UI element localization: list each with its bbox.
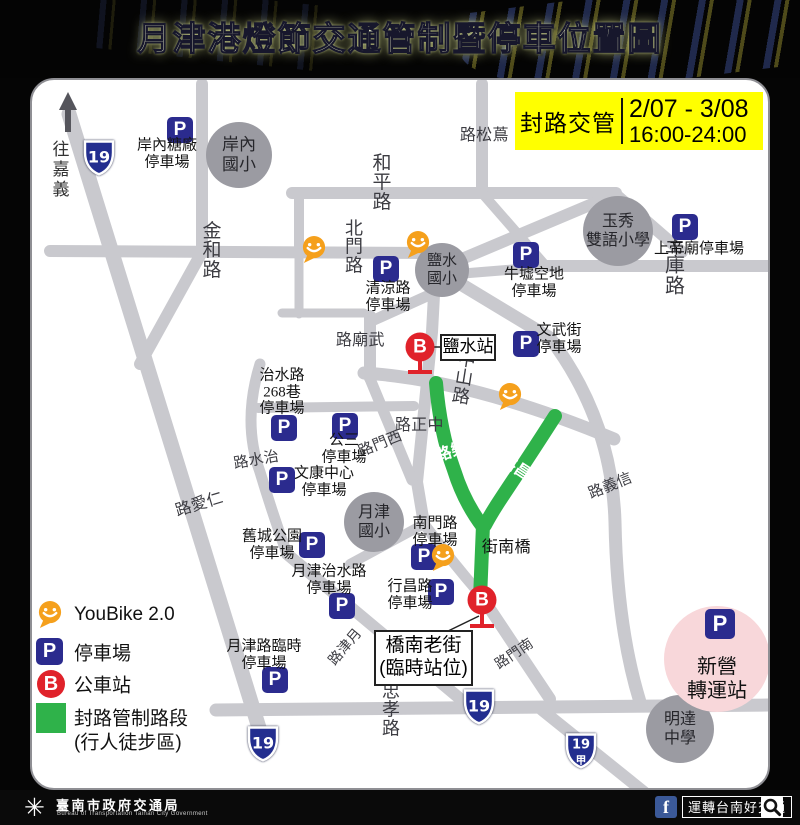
- parking-label: 文康中心 停車場: [294, 466, 354, 499]
- legend-bus-label: 公車站: [74, 671, 131, 698]
- page-title: 月津港燈節交通管制暨停車位置圖: [0, 12, 800, 60]
- compass-destination: 往嘉義: [47, 140, 72, 200]
- route-shield: 19: [246, 725, 280, 768]
- parking-icon: P: [705, 609, 735, 639]
- school-circle: 岸內 國小: [206, 122, 272, 188]
- parking-label: 文武街 停車場: [536, 323, 581, 356]
- page: 月津港燈節交通管制暨停車位置圖: [0, 0, 800, 825]
- parking-icon: P: [269, 467, 295, 493]
- agency-name-en: Bureau of Transportation Tainan City Gov…: [57, 811, 208, 817]
- route-shield: 19: [462, 688, 496, 731]
- parking-label: 公三 停車場: [321, 433, 366, 466]
- road-label: 蔦松路: [457, 126, 506, 144]
- parking-icon: P: [36, 638, 63, 665]
- road-label: 忠孝路: [382, 682, 400, 737]
- school-circle: 月津 國小: [344, 492, 404, 552]
- parking-label: 治水路 268巷 停車場: [259, 367, 304, 417]
- parking-label: 行昌路 停車場: [387, 579, 432, 612]
- search-icon[interactable]: [761, 796, 783, 818]
- route-shield: 19: [82, 139, 116, 182]
- youbike-icon: [301, 235, 328, 265]
- parking-icon: P: [329, 593, 355, 619]
- bus-stop-name: 橋南老街 (臨時站位): [374, 630, 473, 686]
- facebook-icon[interactable]: f: [655, 796, 677, 818]
- road-label: 金和路: [202, 222, 221, 280]
- parking-label: 月津路臨時 停車場: [226, 639, 301, 672]
- notice-dates: 2/07 - 3/08: [629, 96, 763, 123]
- parking-label: 清涼路 停車場: [365, 281, 410, 314]
- legend-closed-label-line1: 封路管制路段: [74, 704, 188, 731]
- svg-text:19: 19: [572, 738, 590, 753]
- legend-closed-label-line2: (行人徒步區): [74, 728, 182, 755]
- bureau-logo-icon: ✳: [24, 793, 45, 823]
- transfer-hub-circle: P 新營 轉運站: [664, 606, 770, 712]
- parking-icon: P: [513, 242, 539, 268]
- svg-text:19: 19: [88, 148, 110, 167]
- legend-parking-label: 停車場: [74, 639, 131, 666]
- road-label: 武廟路: [333, 331, 382, 349]
- school-circle: 玉秀 雙語小學: [583, 196, 653, 266]
- svg-text:甲: 甲: [576, 755, 587, 767]
- hub-name-line2: 轉運站: [664, 674, 770, 703]
- parking-icon: P: [373, 256, 399, 282]
- parking-label: 舊城公園 停車場: [242, 529, 302, 562]
- bus-stop-icon: B: [37, 670, 65, 698]
- bus-stop-name: 鹽水站: [440, 334, 496, 361]
- parking-icon: P: [513, 331, 539, 357]
- parking-label: 月津治水路 停車場: [291, 564, 366, 597]
- map-panel: 岸內 國小鹽水 國小玉秀 雙語小學月津 國小明達 中學金和路和平路北門路土庫路忠…: [30, 78, 770, 790]
- youbike-icon: [430, 543, 457, 573]
- parking-label: 牛墟空地 停車場: [504, 267, 564, 300]
- parking-label: 岸內糖廠 停車場: [137, 138, 197, 171]
- road-closure-notice: 封路交管 2/07 - 3/08 16:00-24:00: [515, 92, 763, 150]
- youbike-icon: [37, 600, 64, 630]
- parking-icon: P: [299, 532, 325, 558]
- svg-text:19: 19: [468, 697, 490, 716]
- youbike-icon: [497, 382, 524, 412]
- svg-text:19: 19: [252, 734, 274, 753]
- road-label: 橋南街: [479, 538, 528, 556]
- closed-road-swatch: [36, 703, 66, 733]
- legend-youbike-label: YouBike 2.0: [74, 604, 175, 626]
- footer-bar: ✳ 臺南市政府交通局 Bureau of Transportation Tain…: [0, 790, 800, 825]
- bus-stop-icon: B: [468, 586, 497, 615]
- bus-stop-icon: B: [406, 333, 435, 362]
- parking-icon: P: [271, 415, 297, 441]
- notice-label: 封路交管: [515, 104, 621, 138]
- youbike-icon: [405, 230, 432, 260]
- notice-hours: 16:00-24:00: [629, 123, 763, 146]
- route-shield: 19 甲: [564, 732, 598, 775]
- header-banner: 月津港燈節交通管制暨停車位置圖: [0, 0, 800, 78]
- road-label: 北門路: [345, 219, 363, 274]
- parking-label: 上帝廟停車場: [654, 241, 744, 258]
- road-label: 和平路: [372, 154, 391, 212]
- parking-icon: P: [672, 214, 698, 240]
